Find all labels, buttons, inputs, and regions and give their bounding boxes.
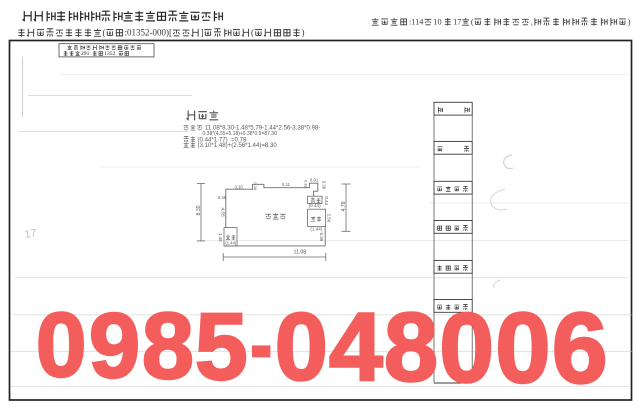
svg-text:8: 8 (384, 293, 438, 402)
svg-text:,: , (531, 18, 533, 27)
svg-text:(: ( (471, 18, 474, 27)
svg-text:(: ( (251, 28, 254, 38)
svg-text::01352-000)[: :01352-000)[ (125, 28, 173, 38)
svg-text:291: 291 (81, 51, 90, 57)
svg-text:17: 17 (24, 227, 38, 241)
svg-text:4.78: 4.78 (341, 201, 347, 211)
svg-text:(0.44): (0.44) (309, 203, 321, 208)
svg-text:0: 0 (495, 293, 550, 404)
svg-text:4: 4 (329, 294, 383, 401)
svg-text:3.10: 3.10 (235, 184, 244, 189)
svg-text:6: 6 (552, 293, 608, 405)
svg-text:0.38: 0.38 (322, 181, 327, 190)
svg-text:10: 10 (433, 18, 441, 27)
svg-text:0: 0 (275, 294, 328, 400)
svg-text:0.91: 0.91 (310, 178, 319, 183)
svg-text:2.56: 2.56 (326, 214, 331, 223)
svg-text:11.08: 11.08 (294, 249, 307, 255)
svg-text:5: 5 (195, 294, 248, 400)
svg-text:): ) (302, 28, 305, 38)
svg-text:(3.10*1.48)+(2.56*1.44)=8.30: (3.10*1.48)+(2.56*1.44)=8.30 (198, 142, 278, 149)
svg-text:1352: 1352 (104, 51, 115, 57)
svg-text:0: 0 (36, 295, 87, 396)
svg-text:0.38: 0.38 (304, 180, 309, 189)
svg-text:(1.44): (1.44) (310, 226, 322, 231)
svg-text:0.44: 0.44 (324, 197, 329, 206)
svg-text:0.98: 0.98 (319, 233, 324, 242)
svg-text:(: ( (103, 28, 106, 38)
svg-text:17: 17 (453, 18, 461, 27)
svg-text:0: 0 (439, 292, 494, 402)
svg-text:0.38: 0.38 (253, 182, 258, 191)
svg-text:]: ] (201, 28, 204, 38)
svg-text:(1.44): (1.44) (225, 241, 237, 246)
svg-text::114: :114 (409, 18, 424, 27)
svg-text:8: 8 (142, 293, 194, 398)
svg-text:1.48: 1.48 (218, 233, 223, 242)
svg-text:): ) (628, 18, 631, 27)
svg-text:5.11: 5.11 (282, 182, 291, 187)
svg-text:4.55: 4.55 (219, 208, 225, 218)
svg-text:0.38: 0.38 (218, 195, 227, 200)
svg-text:9: 9 (89, 293, 140, 397)
svg-text:8.30: 8.30 (196, 205, 202, 215)
